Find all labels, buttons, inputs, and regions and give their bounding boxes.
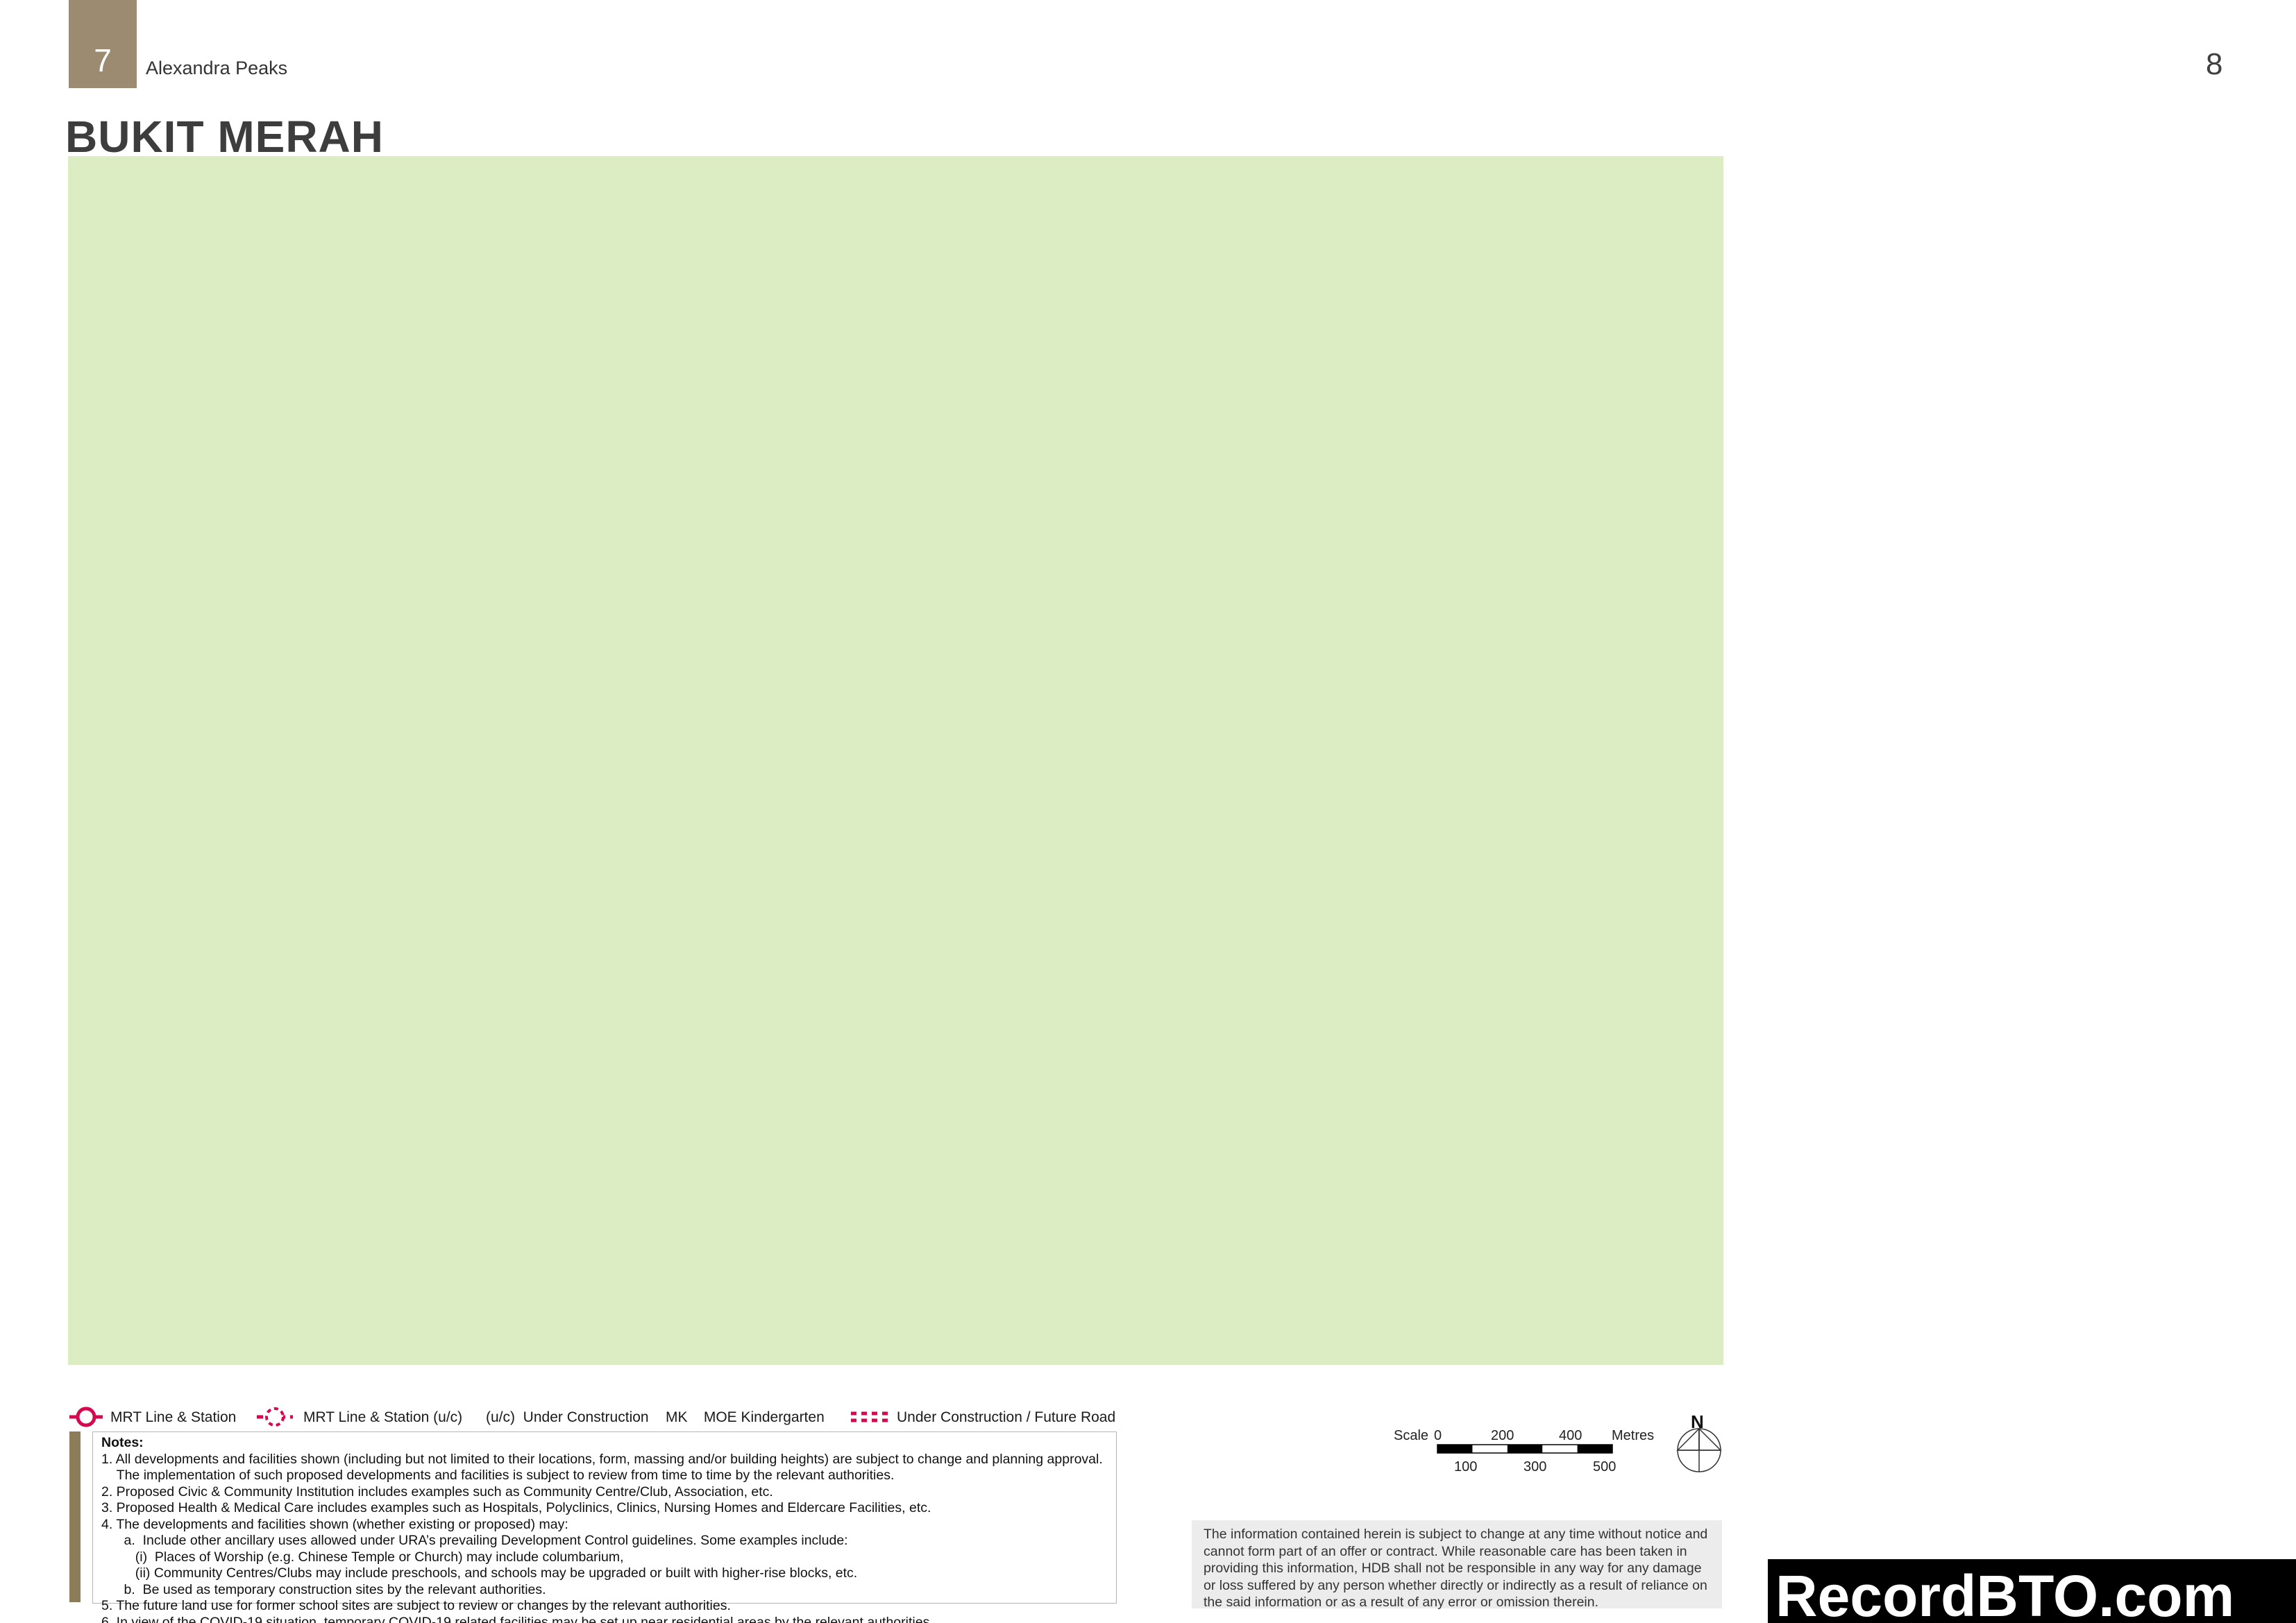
svg-text:200: 200 [1491, 1428, 1514, 1443]
svg-text:0: 0 [1434, 1428, 1442, 1443]
svg-text:400: 400 [1559, 1428, 1582, 1443]
svg-text:100: 100 [1454, 1459, 1477, 1475]
svg-text:500: 500 [1593, 1459, 1616, 1475]
svg-text:Scale: Scale [1394, 1428, 1428, 1443]
svg-text:300: 300 [1523, 1459, 1546, 1475]
svg-text:Metres: Metres [1612, 1428, 1654, 1443]
